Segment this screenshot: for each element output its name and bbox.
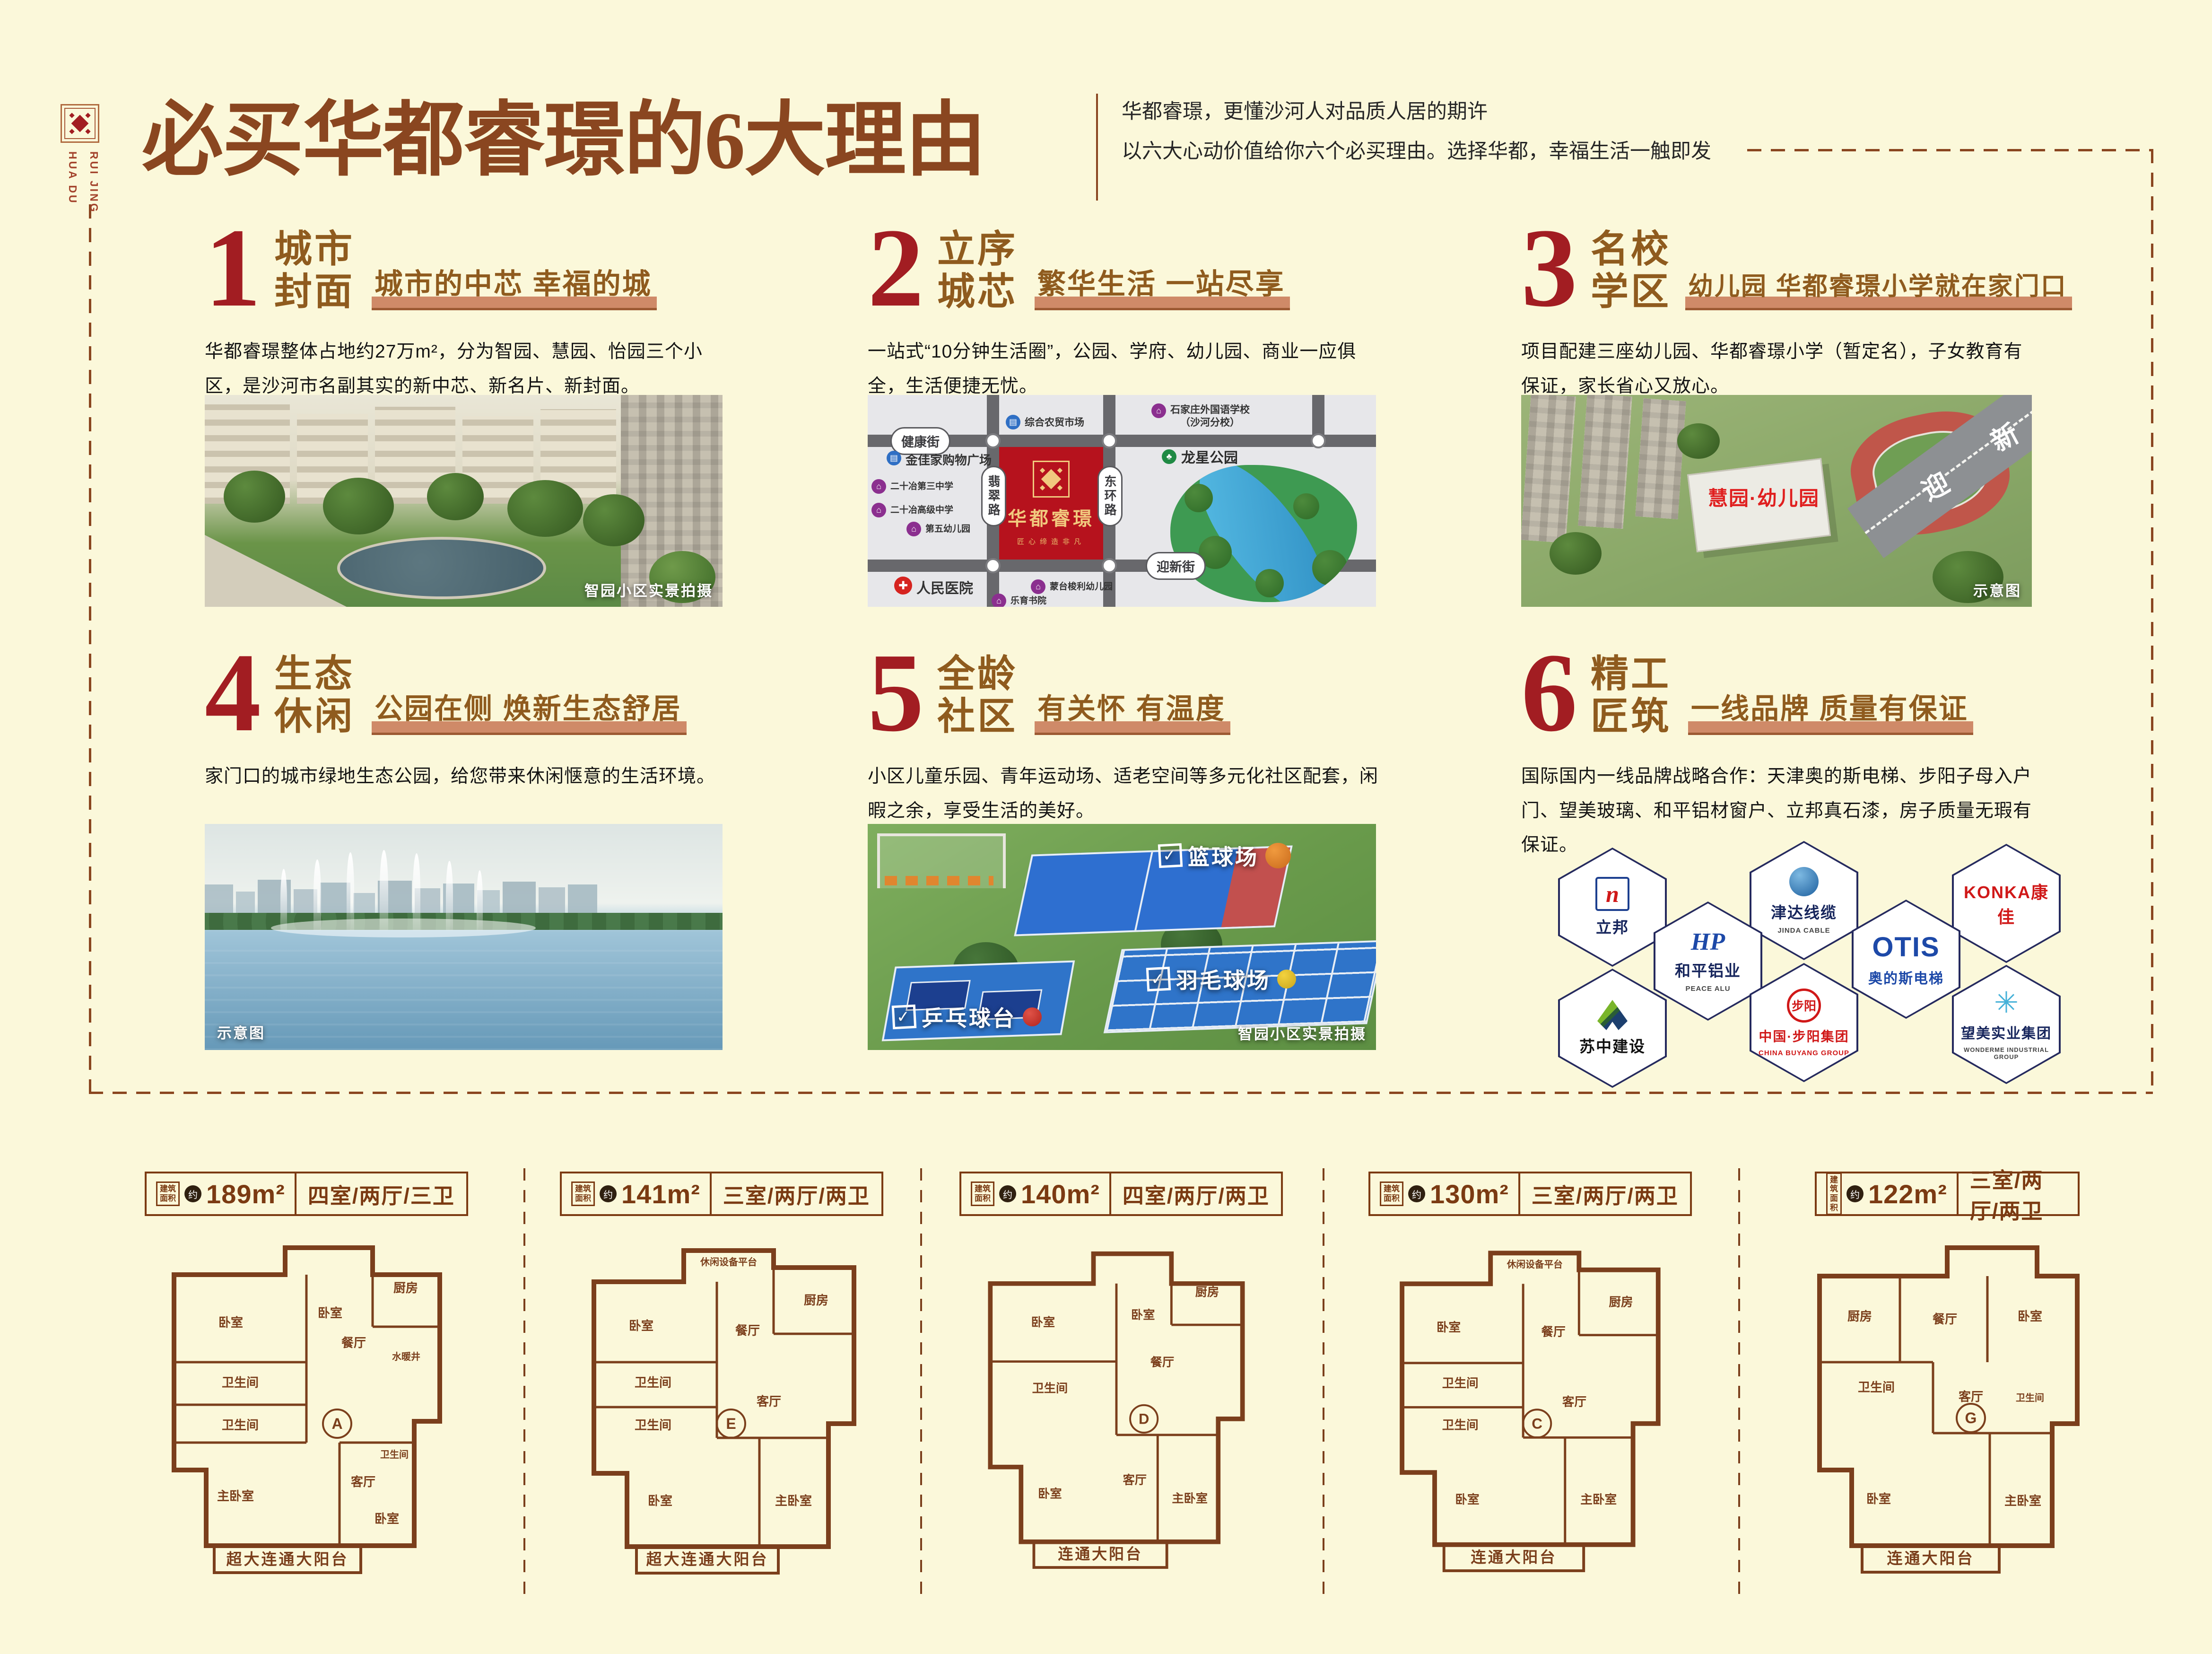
project-emblem-icon (1033, 461, 1070, 498)
section-number: 3 (1521, 223, 1577, 313)
hospital-icon: ✚ (894, 577, 912, 595)
section-title-line2: 匠筑 (1591, 695, 1671, 737)
floorplan-label-141: 建筑 面积约141m² 三室/两厅/两卫 (560, 1172, 883, 1216)
poi-middle-school3: ⌂二十冶第三中学 (871, 479, 953, 494)
brand-vertical-line2: RUI JING (85, 151, 103, 214)
section-title-line1: 名校 (1591, 228, 1671, 270)
photo-caption: 示意图 (1973, 579, 2021, 600)
plan-divider (920, 1168, 922, 1603)
section-title-line2: 学区 (1591, 271, 1671, 313)
school-icon: ⌂ (1031, 579, 1045, 594)
park-label: ♣ 龙星公园 (1162, 446, 1238, 467)
school-icon: ⌂ (871, 503, 886, 517)
school-icon: ⌂ (871, 479, 886, 494)
svg-text:卧室: 卧室 (1866, 1492, 1891, 1506)
poi-hospital: ✚人民医院 (894, 577, 973, 597)
brand-nippon: n 立邦 (1558, 848, 1667, 967)
brand-konka: KONKA康佳 (1952, 844, 2061, 963)
section-city-core: 2 立序城芯 繁华生活 一站尽享 一站式“10分钟生活圈”，公园、学府、幼儿园、… (868, 223, 1381, 403)
svg-text:水暖井: 水暖井 (392, 1351, 420, 1362)
suzhong-logo-icon (1597, 1000, 1628, 1030)
poster: HUA DU RUI JING 必买华都睿璟的6大理由 华都睿璟，更懂沙河人对品… (0, 0, 2212, 1654)
school-icon: ⌂ (906, 522, 921, 536)
svg-text:厨房: 厨房 (1195, 1285, 1219, 1299)
court-label-pingpong: ✓乒乓球台 (892, 1001, 1042, 1033)
svg-text:客厅: 客厅 (1959, 1390, 1983, 1404)
brand-jinda: 津达线缆 JINDA CABLE (1750, 841, 1858, 960)
brand-vertical-name: HUA DU RUI JING (63, 151, 103, 214)
section-number: 5 (868, 648, 924, 738)
floorplan-A: 卧室 卧室 餐厅 厨房 水暖井 卫生间 卫生间 主卧室 客厅 卫生间 卧室 超大… (150, 1220, 462, 1613)
section-number: 2 (868, 223, 924, 313)
road-label-left: 翡翠路 (981, 466, 1006, 526)
svg-text:卫生间: 卫生间 (222, 1375, 259, 1390)
plan-letter: G (1965, 1409, 1977, 1426)
balcony-label: 连通大阳台 (1471, 1549, 1557, 1566)
section-tagline: 城市的中芯 幸福的城 (372, 261, 657, 310)
school-icon: ⌂ (1151, 403, 1166, 418)
svg-text:卫生间: 卫生间 (380, 1449, 409, 1460)
section-tagline: 繁华生活 一站尽享 (1035, 261, 1290, 310)
section-title-line2: 休闲 (274, 695, 355, 737)
floorplan-D: 卧室 卧室 餐厅 厨房 卫生间 卧室 客厅 主卧室 连通大阳台 D (965, 1220, 1268, 1613)
section-title-line2: 城芯 (937, 271, 1018, 313)
aerial-render-photo: 慧园·幼儿园 迎 新 街 示意图 (1521, 395, 2032, 607)
section-all-age-community: 5 全龄社区 有关怀 有温度 小区儿童乐园、青年运动场、适老空间等多元化社区配套… (868, 648, 1381, 828)
checkbox-icon: ✓ (892, 1005, 917, 1030)
plan-top-note: 休闲设备平台 (700, 1256, 757, 1268)
plan-letter: A (331, 1415, 342, 1432)
section-title-line1: 全龄 (937, 653, 1018, 695)
svg-text:卫生间: 卫生间 (1032, 1382, 1068, 1395)
svg-text:卧室: 卧室 (629, 1319, 653, 1333)
section-tagline: 一线品牌 质量有保证 (1688, 686, 1973, 735)
court-label-basketball: ✓篮球场 (1158, 840, 1291, 871)
balcony-label: 连通大阳台 (1058, 1546, 1142, 1563)
svg-text:卧室: 卧室 (1131, 1308, 1155, 1321)
frame-dash-top (1747, 149, 2153, 151)
paddle-icon (1023, 1007, 1042, 1026)
road-label-bottom: 迎新街 (1146, 552, 1206, 580)
svg-text:餐厅: 餐厅 (341, 1336, 366, 1350)
section-title-line1: 生态 (274, 653, 355, 695)
svg-text:卧室: 卧室 (218, 1315, 243, 1330)
poi-montessori: ⌂蒙台梭利幼儿园 (1031, 579, 1113, 594)
svg-text:卫生间: 卫生间 (635, 1375, 671, 1390)
park-lake-photo: 示意图 (205, 824, 723, 1050)
svg-text:厨房: 厨房 (1609, 1295, 1633, 1309)
svg-text:卧室: 卧室 (374, 1512, 399, 1526)
park-area (1170, 465, 1357, 602)
svg-text:客厅: 客厅 (351, 1475, 375, 1489)
section-title-line2: 社区 (937, 695, 1018, 737)
project-slogan: 匠心缔造非凡 (1017, 536, 1085, 546)
floorplan-label-140: 建筑 面积约140m² 四室/两厅/两卫 (959, 1172, 1283, 1216)
svg-text:卫生间: 卫生间 (2016, 1392, 2044, 1403)
svg-text:餐厅: 餐厅 (735, 1323, 760, 1338)
poi-shopping: ▤金佳家购物广场 (887, 451, 992, 468)
svg-text:主卧室: 主卧室 (1172, 1491, 1208, 1505)
floorplan-E: 休闲设备平台 卧室 餐厅 厨房 卫生间 卫生间 卧室 客厅 主卧室 超大连通大阳… (566, 1220, 878, 1613)
building-label: 慧园·幼儿园 (1708, 482, 1820, 511)
frame-dash-right (2151, 149, 2153, 1094)
section-title-line1: 立序 (937, 228, 1018, 270)
section-title-line2: 封面 (274, 271, 355, 313)
jinda-logo-icon (1789, 867, 1819, 896)
svg-text:厨房: 厨房 (804, 1293, 828, 1307)
subtitle-line2: 以六大心动价值给你六个必买理由。选择华都，幸福生活一触即发 (1122, 132, 1711, 172)
brand-suzhong: 苏中建设 (1558, 969, 1667, 1088)
section-city-cover: 1 城市封面 城市的中芯 幸福的城 华都睿璟整体占地约27万m²，分为智园、慧园… (205, 223, 725, 403)
plan-divider (1738, 1168, 1740, 1603)
frame-dash-left (89, 204, 91, 1093)
svg-text:卧室: 卧室 (1437, 1320, 1461, 1334)
header-divider (1096, 94, 1098, 201)
community-photo: 智园小区实景拍摄 (205, 395, 723, 607)
section-title-line1: 城市 (274, 228, 355, 270)
svg-text:卧室: 卧室 (2018, 1309, 2042, 1323)
plan-letter: D (1139, 1411, 1149, 1427)
market-icon: ▤ (1006, 415, 1020, 429)
photo-caption: 智园小区实景拍摄 (1238, 1022, 1367, 1043)
peace-logo-icon: HP (1691, 930, 1725, 954)
section-body: 华都睿璟整体占地约27万m²，分为智园、慧园、怡园三个小区，是沙河市名副其实的新… (205, 335, 725, 403)
brand-peace-alu: HP 和平铝业 PEACE ALU (1654, 901, 1762, 1021)
road-char: 迎 (1914, 462, 1955, 508)
poi-high-school: ⌂二十冶高级中学 (871, 503, 953, 517)
buyang-logo-icon: 步阳 (1787, 989, 1821, 1023)
badminton-icon (1277, 970, 1296, 989)
svg-text:卫生间: 卫生间 (1442, 1376, 1479, 1390)
svg-text:卧室: 卧室 (1031, 1315, 1055, 1329)
photo-caption: 示意图 (217, 1021, 265, 1042)
section-eco-leisure: 4 生态休闲 公园在侧 焕新生态舒居 家门口的城市绿地生态公园，给您带来休闲惬意… (205, 648, 725, 794)
poi-academy: ⌂乐育书院 (992, 594, 1046, 607)
svg-text:卧室: 卧室 (1455, 1492, 1479, 1506)
checkbox-icon: ✓ (1158, 843, 1183, 868)
wonderme-logo-icon: ✳ (1994, 989, 2019, 1018)
section-tagline: 幼儿园 华都睿璟小学就在家门口 (1685, 266, 2072, 310)
balcony-label: 超大连通大阳台 (646, 1550, 769, 1568)
svg-text:餐厅: 餐厅 (1933, 1312, 1957, 1326)
stone-path (205, 517, 347, 607)
plan-letter: E (726, 1415, 736, 1432)
checkbox-icon: ✓ (1146, 967, 1171, 992)
project-block: 华都睿璟 匠心缔造非凡 (999, 447, 1103, 560)
floorplan-G: 厨房 餐厅 卧室 卫生间 卫生间 卧室 客厅 主卧室 连通大阳台 G (1791, 1220, 2103, 1613)
pond (337, 537, 546, 599)
section-number: 4 (205, 648, 261, 738)
court-label-badminton: ✓羽毛球场 (1147, 963, 1296, 995)
svg-text:餐厅: 餐厅 (1541, 1325, 1566, 1339)
header-subtitle: 华都睿璟，更懂沙河人对品质人居的期许 以六大心动价值给你六个必买理由。选择华都，… (1122, 92, 1711, 172)
svg-text:餐厅: 餐厅 (1150, 1356, 1174, 1369)
section-body: 一站式“10分钟生活圈”，公园、学府、幼儿园、商业一应俱全，生活便捷无忧。 (868, 335, 1381, 403)
location-map: 健康街 迎新街 翡翠路 东环路 华都睿璟 匠心缔造非凡 ♣ 龙星公园 ▤综合农贸… (868, 395, 1376, 607)
section-number: 1 (205, 223, 261, 313)
page-title: 必买华都睿璟的6大理由 (142, 73, 985, 192)
fountain-mist (271, 919, 536, 937)
svg-text:卫生间: 卫生间 (1442, 1418, 1479, 1432)
poi-market1: ▤综合农贸市场 (1006, 415, 1084, 429)
svg-text:厨房: 厨房 (393, 1281, 418, 1295)
poi-kindergarten5: ⌂第五幼儿园 (906, 522, 970, 536)
svg-text:厨房: 厨房 (1847, 1309, 1872, 1323)
frame-dash-bottom (89, 1092, 2153, 1094)
svg-text:主卧室: 主卧室 (2004, 1494, 2041, 1508)
balcony-label: 连通大阳台 (1887, 1549, 1975, 1567)
huadu-emblem-icon (61, 104, 99, 143)
plan-divider (523, 1168, 525, 1603)
section-number: 6 (1521, 648, 1577, 738)
section-body: 项目配建三座幼儿园、华都睿璟小学（暂定名），子女教育有保证，家长省心又放心。 (1521, 335, 2037, 403)
project-name: 华都睿璟 (1008, 503, 1095, 531)
section-title-line1: 精工 (1591, 653, 1671, 695)
floorplan-label-130: 建筑 面积约130m² 三室/两厅/两卫 (1368, 1172, 1692, 1216)
floorplan-label-189: 建筑 面积约189m² 四室/两厅/三卫 (145, 1172, 468, 1216)
svg-text:卫生间: 卫生间 (1858, 1380, 1895, 1394)
brand-vertical-line1: HUA DU (63, 151, 82, 214)
svg-text:主卧室: 主卧室 (775, 1494, 812, 1508)
svg-text:卧室: 卧室 (318, 1306, 342, 1320)
section-body: 家门口的城市绿地生态公园，给您带来休闲惬意的生活环境。 (205, 760, 725, 794)
market-icon: ▤ (887, 451, 901, 465)
floorplan-C: 休闲设备平台 卧室 餐厅 厨房 卫生间 卫生间 卧室 客厅 主卧室 连通大阳台 … (1374, 1220, 1681, 1613)
otis-logo: OTIS (1872, 931, 1940, 963)
brand-otis: OTIS 奥的斯电梯 (1852, 900, 1960, 1019)
basketball-icon (1265, 843, 1291, 868)
brand-buyang: 步阳 中国·步阳集团 CHINA BUYANG GROUP (1750, 963, 1858, 1082)
svg-text:客厅: 客厅 (1123, 1473, 1147, 1487)
svg-text:卫生间: 卫生间 (222, 1418, 259, 1432)
school-icon: ⌂ (992, 594, 1006, 607)
brand-hex-grid: n 立邦 津达线缆 JINDA CABLE KONKA康佳 HP 和平铝业 PE… (1521, 824, 2079, 1092)
svg-text:卫生间: 卫生间 (635, 1418, 671, 1432)
section-tagline: 有关怀 有温度 (1035, 686, 1230, 735)
balcony-label: 超大连通大阳台 (226, 1550, 349, 1568)
photo-caption: 智园小区实景拍摄 (584, 579, 713, 600)
plan-letter: C (1532, 1415, 1542, 1432)
pergola (877, 833, 1006, 888)
park-icon: ♣ (1162, 449, 1176, 464)
svg-text:主卧室: 主卧室 (1580, 1492, 1617, 1506)
nippon-logo-icon: n (1595, 877, 1629, 911)
svg-text:主卧室: 主卧室 (217, 1489, 254, 1503)
poi-school-foreign: ⌂石家庄外国语学校（沙河分校） (1151, 403, 1250, 429)
svg-text:客厅: 客厅 (757, 1394, 781, 1409)
section-school-district: 3 名校学区 幼儿园 华都睿璟小学就在家门口 项目配建三座幼儿园、华都睿璟小学（… (1521, 223, 2037, 403)
floorplan-label-122: 建筑 面积约122m² 三室/两厅/两卫 (1815, 1172, 2080, 1216)
subtitle-line1: 华都睿璟，更懂沙河人对品质人居的期许 (1122, 92, 1711, 132)
plan-top-note: 休闲设备平台 (1507, 1259, 1563, 1270)
section-tagline: 公园在侧 焕新生态舒居 (372, 686, 687, 735)
plan-divider (1323, 1168, 1324, 1603)
svg-text:卧室: 卧室 (1038, 1487, 1062, 1501)
svg-text:客厅: 客厅 (1562, 1394, 1586, 1409)
svg-text:卧室: 卧室 (648, 1494, 672, 1508)
sports-park-photo: ✓篮球场 ✓羽毛球场 ✓乒乓球台 智园小区实景拍摄 (868, 824, 1376, 1050)
brand-wonderme: ✳ 望美实业集团 WONDERME INDUSTRIAL GROUP (1952, 965, 2061, 1084)
section-body: 小区儿童乐园、青年运动场、适老空间等多元化社区配套，闲暇之余，享受生活的美好。 (868, 760, 1381, 828)
road-label-right: 东环路 (1097, 466, 1123, 526)
